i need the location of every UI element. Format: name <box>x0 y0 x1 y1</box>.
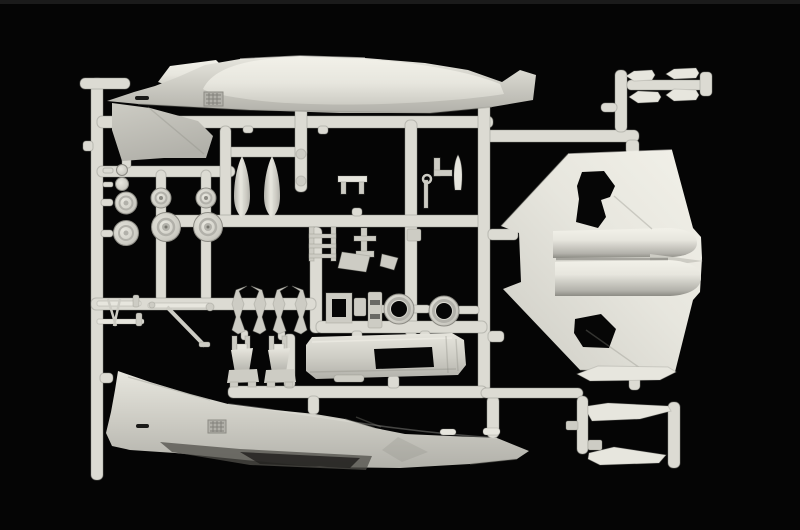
runner-endcap <box>700 72 712 96</box>
gear-foot <box>199 342 210 347</box>
runner-nub <box>83 141 93 151</box>
small-tab-part <box>566 421 578 430</box>
runner-bar <box>481 388 583 398</box>
tub-mount-tab <box>334 375 364 382</box>
gear-strut-fitting <box>136 313 142 326</box>
runner-stub <box>103 168 113 173</box>
runner-stub <box>488 331 504 342</box>
canopy-hinge-bump <box>440 429 456 435</box>
runner-stub <box>388 376 399 388</box>
runner-bar <box>478 95 490 392</box>
small-box-part <box>354 298 366 316</box>
engine-fairing-lower <box>555 260 701 296</box>
small-tab-part <box>588 440 602 450</box>
sprue-gate-tab <box>243 126 253 133</box>
runner-bar <box>91 78 103 480</box>
runner-bar <box>577 396 588 454</box>
nose-seam-slot <box>135 96 149 100</box>
runner-bar <box>627 80 707 90</box>
notched-bar-part <box>368 292 382 328</box>
small-hub-part <box>116 178 129 191</box>
main-gear-leg <box>148 303 210 308</box>
air-scoop-part <box>338 252 370 272</box>
runner-stub <box>101 199 113 206</box>
runner-bar <box>615 70 627 132</box>
nose-wheel <box>151 188 171 208</box>
cockpit-tub-opening <box>374 347 434 369</box>
runner-stub <box>412 305 430 313</box>
wheel-hub-disc <box>114 221 139 246</box>
runner-stub <box>457 306 479 314</box>
photo-edge-strip <box>0 0 800 4</box>
sprue-gate-tab <box>352 208 362 216</box>
nose-wheel <box>196 188 216 208</box>
missile-half <box>666 89 699 101</box>
intake-ring <box>429 296 459 326</box>
runner-bar <box>481 130 639 142</box>
gear-wheel-axle <box>149 302 155 308</box>
main-wheel <box>152 213 181 242</box>
gear-strut-fitting <box>133 295 139 307</box>
small-box-part <box>407 229 421 241</box>
main-wheel <box>194 213 223 242</box>
molded-vent-grille <box>208 420 226 433</box>
sprue-gate-tab <box>318 126 328 134</box>
small-knob-part <box>296 176 306 186</box>
stabilizer-blade <box>577 366 676 381</box>
sprue-photo-canvas <box>0 0 800 530</box>
runner-stub <box>103 182 113 187</box>
runner-stub <box>308 396 319 414</box>
small-hub-part <box>117 165 128 176</box>
runner-stub <box>100 373 113 383</box>
engine-fairing-upper <box>553 228 697 258</box>
canopy-hinge-bump <box>483 428 500 435</box>
runner-nub <box>601 103 617 112</box>
gear-wheel-axle <box>206 303 214 311</box>
runner-bar <box>668 402 680 468</box>
part-cockpit-tub <box>306 333 466 382</box>
sprue-photo <box>0 0 800 530</box>
runner-bar <box>220 126 231 223</box>
wheel-hub-disc <box>115 192 137 214</box>
intake-ring <box>384 294 414 324</box>
nose-seam-slot <box>136 424 149 428</box>
runner-stub <box>101 230 113 237</box>
runner-bar <box>228 386 487 398</box>
runner-bar <box>80 78 130 89</box>
small-knob-part <box>296 149 306 159</box>
bulkhead-frame-part <box>326 293 352 323</box>
molded-vent-grille <box>204 92 223 106</box>
